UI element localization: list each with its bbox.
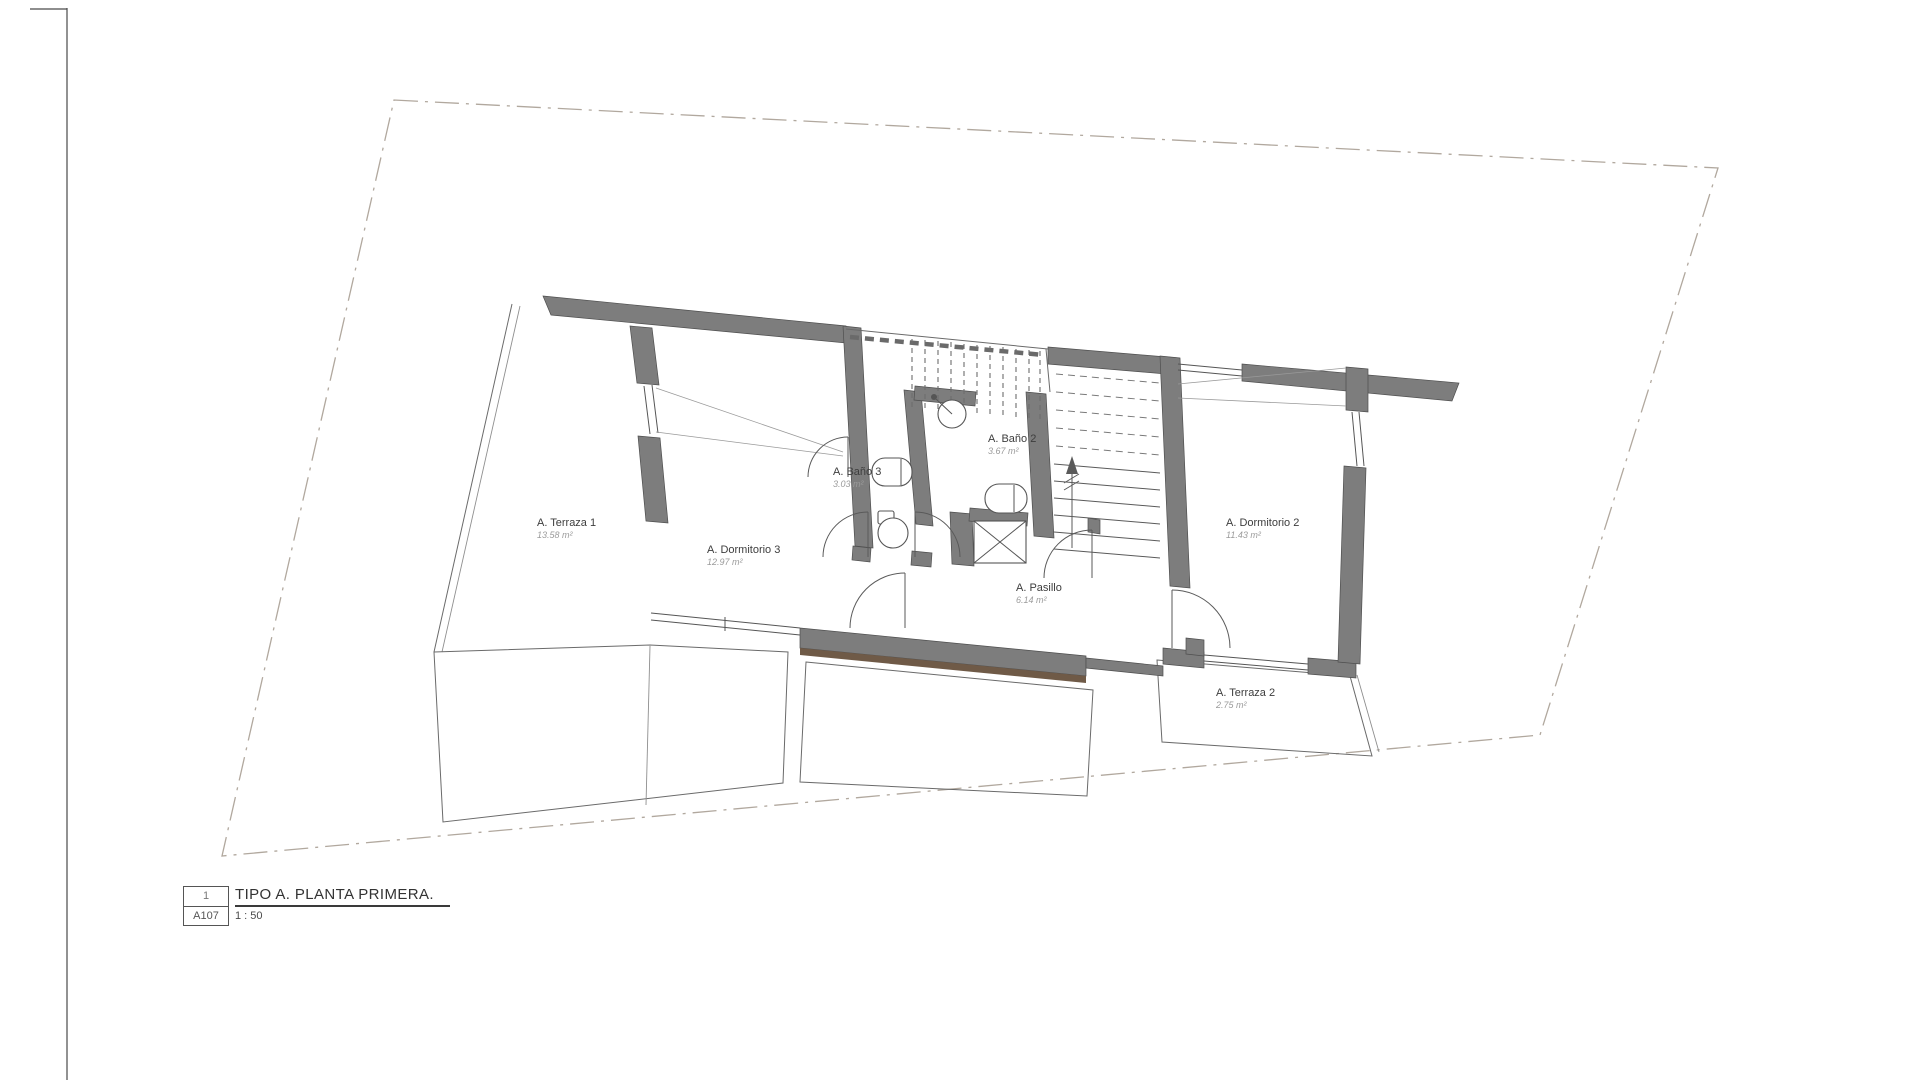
room-label-bano-2: A. Baño 2 3.67 m² [988, 433, 1036, 457]
room-label-terraza-2: A. Terraza 2 2.75 m² [1216, 687, 1275, 711]
room-name: A. Dormitorio 3 [707, 544, 780, 556]
room-area: 6.14 m² [1016, 595, 1062, 606]
detail-number: 1 [184, 887, 228, 907]
room-label-terraza-1: A. Terraza 1 13.58 m² [537, 517, 596, 541]
drawing-sheet: A. Terraza 1 13.58 m² A. Dormitorio 3 12… [0, 0, 1920, 1080]
room-name: A. Pasillo [1016, 582, 1062, 594]
room-area: 12.97 m² [707, 557, 780, 568]
room-area: 3.67 m² [988, 446, 1036, 457]
room-name: A. Baño 3 [833, 466, 881, 478]
property-boundary [222, 100, 1718, 856]
stair-treads-dashed [1056, 374, 1160, 455]
room-area: 13.58 m² [537, 530, 596, 541]
room-label-dormitorio-3: A. Dormitorio 3 12.97 m² [707, 544, 780, 568]
room-area: 3.03 m² [833, 479, 881, 490]
toilet-icon-2 [985, 484, 1027, 513]
room-label-dormitorio-2: A. Dormitorio 2 11.43 m² [1226, 517, 1299, 541]
room-name: A. Terraza 2 [1216, 687, 1275, 699]
room-label-pasillo: A. Pasillo 6.14 m² [1016, 582, 1062, 606]
stair-treads-solid [1054, 464, 1160, 558]
room-label-bano-3: A. Baño 3 3.03 m² [833, 466, 881, 490]
drawing-scale: 1 : 50 [235, 910, 450, 922]
terrace-outlines [434, 304, 1379, 822]
room-name: A. Dormitorio 2 [1226, 517, 1299, 529]
room-name: A. Terraza 1 [537, 517, 596, 529]
bathroom-fixtures [872, 394, 1027, 563]
sheet-border [30, 8, 67, 1080]
room-area: 2.75 m² [1216, 700, 1275, 711]
drawing-title: TIPO A. PLANTA PRIMERA. [235, 886, 450, 907]
sheet-number: A107 [184, 907, 228, 926]
toilet-icon [878, 511, 908, 548]
title-block: 1 A107 TIPO A. PLANTA PRIMERA. 1 : 50 [183, 886, 450, 926]
room-area: 11.43 m² [1226, 530, 1299, 541]
detail-reference-box: 1 A107 [183, 886, 229, 926]
shower-pan-icon [974, 521, 1026, 563]
room-name: A. Baño 2 [988, 433, 1036, 445]
